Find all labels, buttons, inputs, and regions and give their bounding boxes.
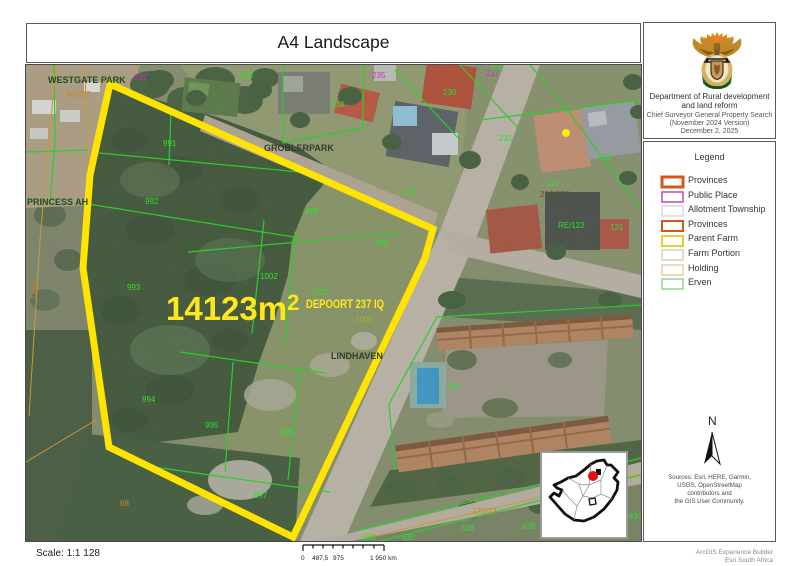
svg-text:GROBLERPARK: GROBLERPARK — [264, 143, 334, 153]
svg-text:234: 234 — [331, 100, 345, 109]
svg-text:235: 235 — [372, 71, 386, 80]
svg-text:121: 121 — [610, 223, 624, 232]
svg-text:1001: 1001 — [311, 288, 329, 297]
svg-text:999: 999 — [375, 239, 389, 248]
svg-text:94/237: 94/237 — [66, 90, 91, 99]
svg-text:DEPOORT 237 IQ: DEPOORT 237 IQ — [306, 299, 384, 311]
svg-text:997: 997 — [254, 491, 268, 500]
svg-text:112: 112 — [599, 153, 612, 162]
svg-text:PRINCESS AH: PRINCESS AH — [27, 197, 88, 207]
svg-text:232: 232 — [403, 187, 417, 196]
svg-text:638: 638 — [461, 524, 475, 533]
svg-text:1 950 km: 1 950 km — [370, 555, 397, 562]
svg-text:237: 237 — [134, 73, 148, 82]
svg-text:218/237: 218/237 — [540, 190, 569, 199]
svg-text:104: 104 — [447, 382, 461, 391]
svg-text:1000: 1000 — [355, 315, 373, 324]
svg-text:992: 992 — [145, 197, 159, 206]
svg-text:WESTGATE PARK: WESTGATE PARK — [48, 75, 126, 85]
svg-text:0: 0 — [301, 555, 305, 562]
svg-text:995: 995 — [205, 421, 219, 430]
svg-text:998: 998 — [305, 207, 319, 216]
svg-text:68: 68 — [120, 499, 129, 508]
svg-text:487,5: 487,5 — [312, 555, 329, 562]
svg-text:14123m2: 14123m2 — [166, 290, 299, 327]
svg-text:994: 994 — [142, 395, 156, 404]
svg-text:LINDHAVEN: LINDHAVEN — [331, 351, 383, 361]
svg-text:975: 975 — [333, 555, 344, 562]
svg-text:1002: 1002 — [260, 272, 278, 281]
svg-text:993: 993 — [127, 283, 141, 292]
svg-text:172/23: 172/23 — [472, 507, 497, 516]
svg-text:230: 230 — [443, 88, 457, 97]
svg-text:231: 231 — [499, 134, 513, 143]
svg-text:637: 637 — [402, 533, 416, 541]
svg-text:111: 111 — [546, 179, 559, 188]
svg-text:227: 227 — [486, 69, 500, 78]
svg-text:996: 996 — [280, 428, 294, 437]
svg-text:639: 639 — [522, 522, 536, 531]
svg-text:637: 637 — [629, 512, 641, 521]
svg-text:225: 225 — [240, 71, 254, 80]
svg-text:991: 991 — [163, 139, 177, 148]
svg-text:636: 636 — [362, 533, 376, 541]
svg-text:RE/122: RE/122 — [558, 221, 585, 230]
